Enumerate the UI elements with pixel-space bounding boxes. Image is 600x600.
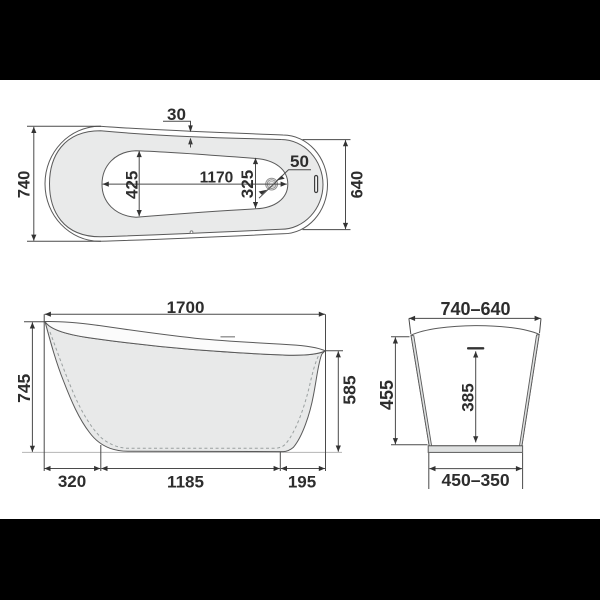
svg-text:30: 30 [167, 105, 186, 124]
svg-text:740: 740 [16, 171, 34, 199]
svg-text:325: 325 [238, 170, 257, 198]
svg-text:740–640: 740–640 [440, 299, 510, 319]
svg-text:385: 385 [459, 383, 478, 411]
svg-text:425: 425 [123, 171, 142, 199]
svg-text:640: 640 [349, 171, 367, 199]
svg-text:195: 195 [288, 473, 316, 492]
svg-text:585: 585 [340, 375, 360, 404]
svg-text:1185: 1185 [167, 473, 204, 492]
svg-text:1170: 1170 [200, 169, 234, 186]
svg-text:50: 50 [290, 152, 309, 171]
svg-text:455: 455 [377, 380, 397, 410]
svg-text:450–350: 450–350 [442, 470, 510, 490]
svg-text:1700: 1700 [167, 298, 205, 317]
svg-text:745: 745 [14, 373, 34, 402]
svg-text:320: 320 [58, 472, 86, 491]
